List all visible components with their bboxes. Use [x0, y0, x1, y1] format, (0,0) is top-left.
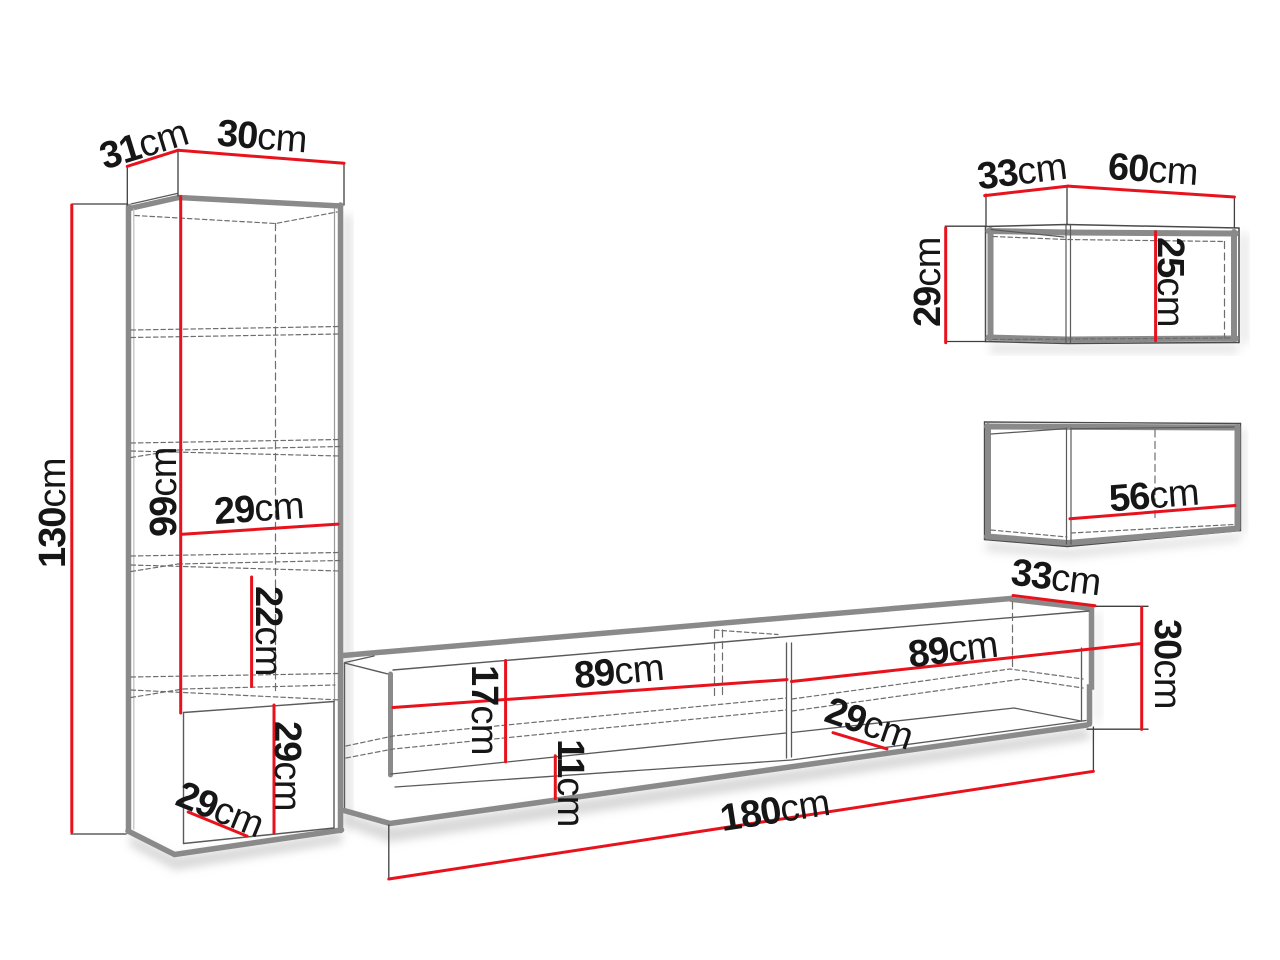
svg-text:11cm: 11cm — [549, 739, 591, 827]
svg-text:30cm: 30cm — [1146, 619, 1188, 709]
svg-text:29cm: 29cm — [213, 485, 306, 533]
svg-text:56cm: 56cm — [1108, 472, 1201, 521]
svg-text:60cm: 60cm — [1107, 146, 1200, 194]
svg-text:22cm: 22cm — [247, 586, 289, 676]
svg-text:89cm: 89cm — [572, 647, 666, 697]
svg-text:130cm: 130cm — [32, 458, 74, 568]
svg-text:99cm: 99cm — [143, 447, 185, 537]
svg-text:25cm: 25cm — [1149, 237, 1191, 327]
svg-text:29cm: 29cm — [907, 237, 949, 327]
svg-text:17cm: 17cm — [463, 665, 505, 755]
svg-text:30cm: 30cm — [216, 113, 309, 162]
svg-text:29cm: 29cm — [266, 721, 308, 811]
